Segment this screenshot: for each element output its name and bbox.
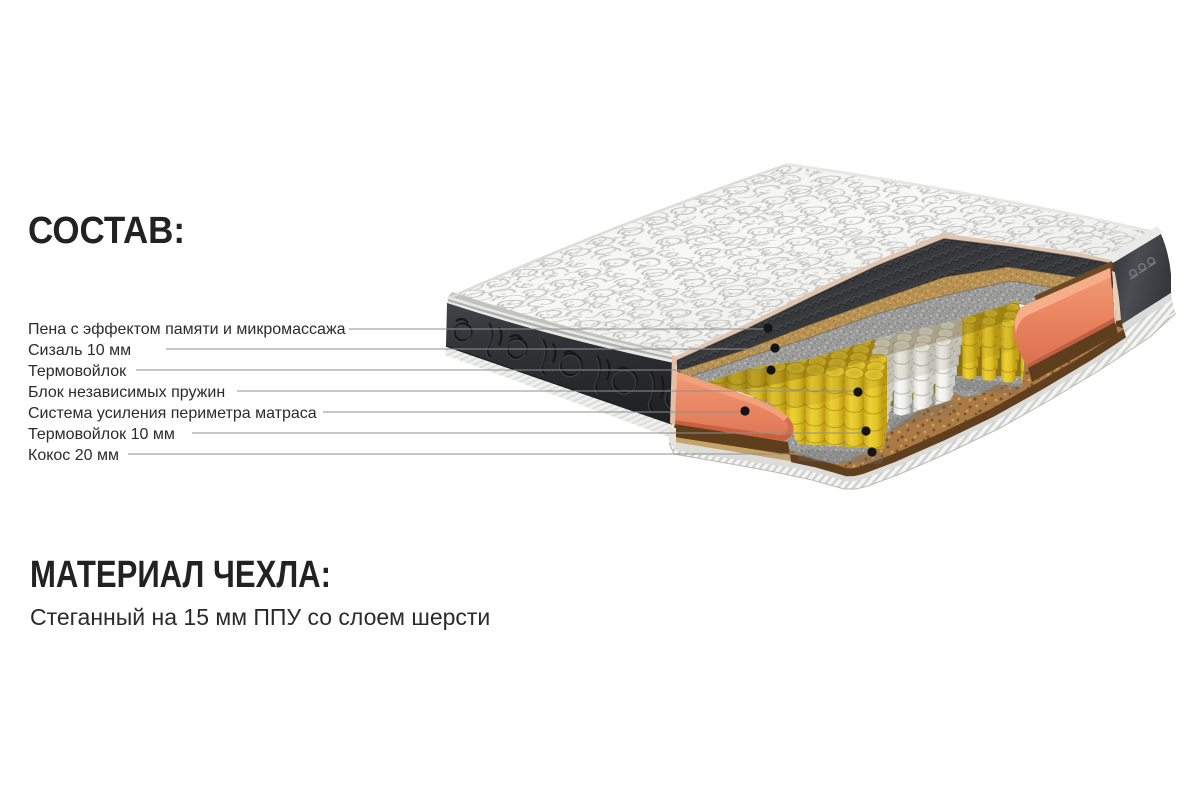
svg-text:Кокос 20 мм: Кокос 20 мм <box>28 447 119 464</box>
svg-text:Пена с эффектом памяти и микро: Пена с эффектом памяти и микромассажа <box>28 321 346 338</box>
svg-text:Система усиления периметра мат: Система усиления периметра матраса <box>28 405 317 422</box>
svg-text:Сизаль 10 мм: Сизаль 10 мм <box>28 342 131 359</box>
svg-text:Термовойлок: Термовойлок <box>28 363 127 380</box>
svg-text:Блок независимых пружин: Блок независимых пружин <box>28 384 225 401</box>
svg-text:МАТЕРИАЛ ЧЕХЛА:: МАТЕРИАЛ ЧЕХЛА: <box>30 554 331 596</box>
svg-text:Термовойлок 10 мм: Термовойлок 10 мм <box>28 426 175 443</box>
svg-text:СОСТАВ:: СОСТАВ: <box>28 210 185 252</box>
svg-text:Стеганный на 15 мм ППУ со слое: Стеганный на 15 мм ППУ со слоем шерсти <box>30 604 490 630</box>
